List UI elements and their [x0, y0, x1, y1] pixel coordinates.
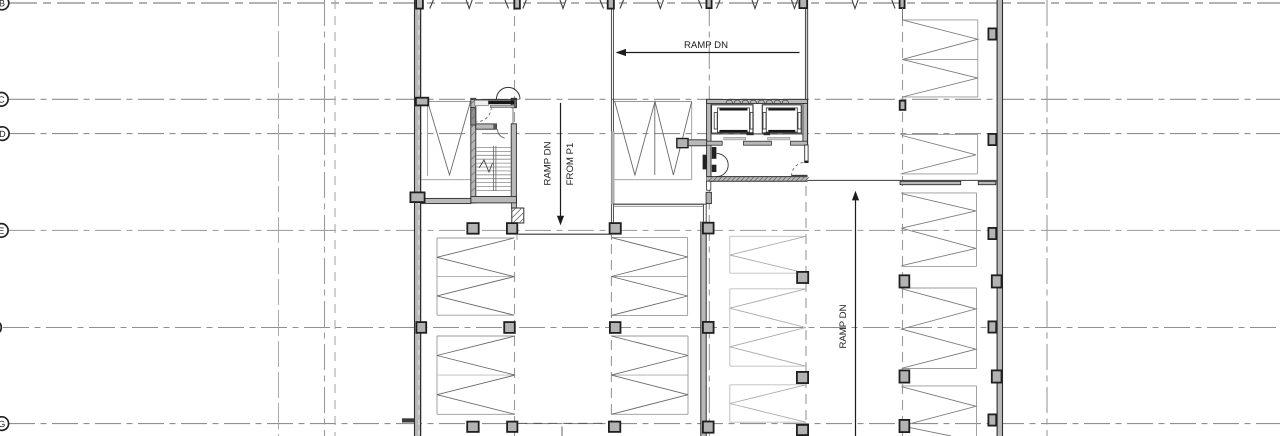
- svg-text:G: G: [0, 419, 5, 429]
- svg-text:RAMP DN: RAMP DN: [543, 141, 554, 185]
- svg-text:B: B: [0, 0, 5, 8]
- svg-text:FROM P1: FROM P1: [565, 143, 576, 186]
- svg-text:D: D: [0, 129, 6, 139]
- svg-text:RAMP DN: RAMP DN: [838, 304, 849, 348]
- svg-text:E: E: [0, 226, 4, 236]
- svg-text:C: C: [0, 95, 5, 105]
- svg-text:RAMP DN: RAMP DN: [684, 40, 728, 51]
